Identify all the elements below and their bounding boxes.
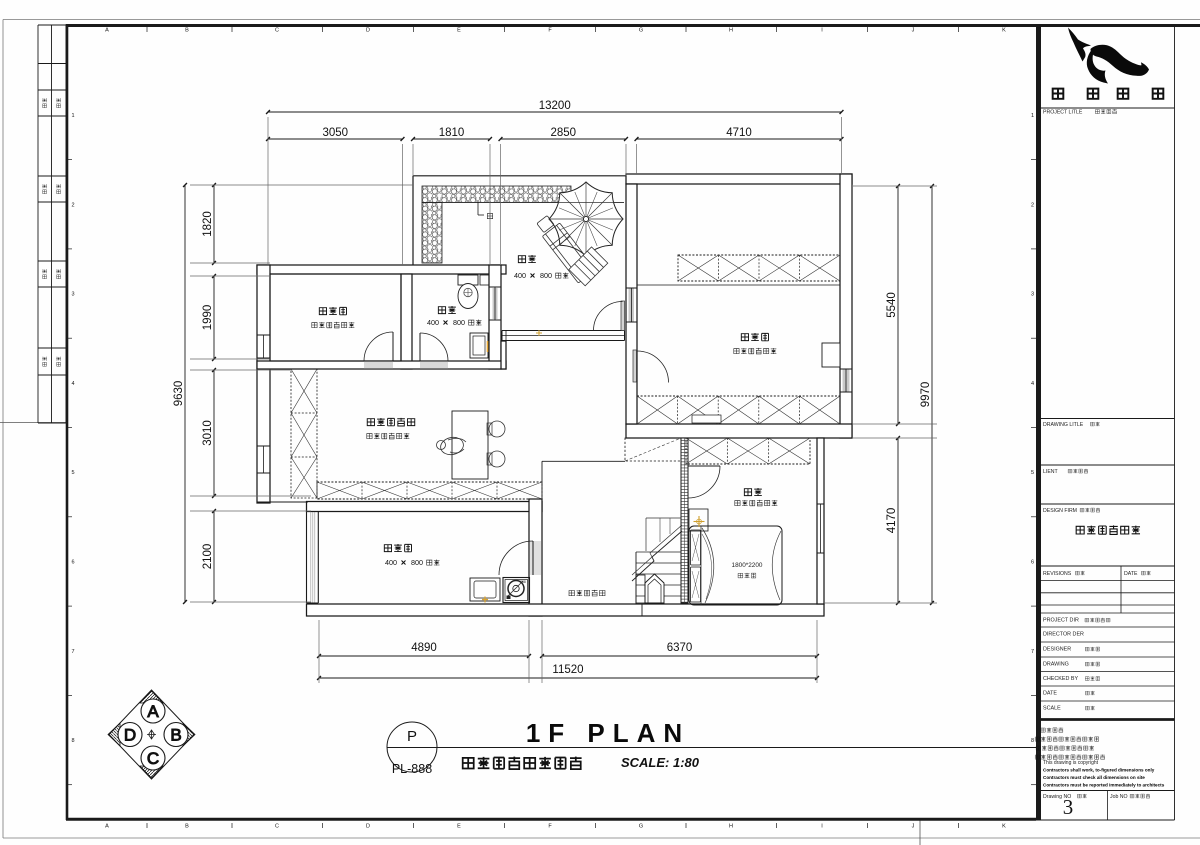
svg-text:DATE: DATE — [1043, 691, 1057, 697]
svg-text:5: 5 — [1031, 470, 1034, 476]
svg-text:3: 3 — [1063, 795, 1074, 819]
svg-text:A: A — [105, 28, 109, 34]
svg-text:3: 3 — [1031, 292, 1034, 298]
svg-text:1820: 1820 — [202, 211, 214, 237]
svg-text:6: 6 — [1031, 560, 1034, 566]
svg-text:B: B — [170, 726, 181, 745]
svg-text:2: 2 — [1031, 202, 1034, 208]
svg-text:5: 5 — [72, 470, 75, 476]
svg-text:DIRECTOR DER: DIRECTOR DER — [1043, 632, 1084, 638]
svg-text:J: J — [912, 824, 915, 830]
svg-text:4890: 4890 — [411, 642, 437, 654]
svg-text:LIENT: LIENT — [1043, 469, 1059, 475]
svg-text:1990: 1990 — [202, 305, 214, 331]
svg-text:1800*2200: 1800*2200 — [732, 562, 763, 569]
svg-text:13200: 13200 — [539, 100, 571, 112]
svg-text:CHECKED BY: CHECKED BY — [1043, 676, 1078, 682]
svg-text:3010: 3010 — [202, 420, 214, 446]
svg-text:6370: 6370 — [667, 642, 693, 654]
svg-text:1: 1 — [72, 113, 75, 119]
svg-text:C: C — [147, 749, 159, 768]
svg-text:4: 4 — [1031, 381, 1034, 387]
svg-text:This drawing is copyright: This drawing is copyright — [1043, 760, 1099, 766]
svg-text:H: H — [729, 28, 733, 34]
svg-text:4170: 4170 — [886, 508, 898, 534]
svg-text:PROJECT LITLE: PROJECT LITLE — [1043, 110, 1083, 116]
svg-text:E: E — [457, 824, 461, 830]
svg-text:2850: 2850 — [550, 127, 576, 139]
svg-text:888: 888 — [520, 580, 526, 584]
svg-text:1810: 1810 — [439, 127, 465, 139]
svg-text:800: 800 — [411, 558, 423, 567]
svg-text:C: C — [275, 28, 279, 34]
svg-text:800: 800 — [540, 271, 552, 280]
svg-text:2100: 2100 — [202, 544, 214, 570]
svg-text:DRAWING LITLE: DRAWING LITLE — [1043, 422, 1084, 428]
svg-text:3050: 3050 — [322, 127, 348, 139]
svg-text:7: 7 — [1031, 649, 1034, 655]
svg-text:PROJECT DIR: PROJECT DIR — [1043, 618, 1079, 624]
svg-text:11520: 11520 — [552, 664, 583, 676]
svg-text:6: 6 — [72, 560, 75, 566]
svg-text:5540: 5540 — [886, 292, 898, 318]
svg-text:9630: 9630 — [173, 381, 185, 407]
svg-text:G: G — [639, 28, 643, 34]
svg-text:P: P — [407, 728, 417, 745]
svg-text:Job NO: Job NO — [1110, 794, 1128, 800]
svg-text:K: K — [1002, 824, 1006, 830]
svg-text:G: G — [639, 824, 643, 830]
svg-text:Contractors must be reported i: Contractors must be reported immediately… — [1043, 783, 1165, 788]
svg-text:SCALE: SCALE — [1043, 706, 1061, 712]
svg-text:A: A — [147, 702, 159, 721]
svg-text:4710: 4710 — [726, 127, 752, 139]
svg-text:Contractors must check all dim: Contractors must check all dimensions on… — [1043, 775, 1145, 780]
svg-text:7: 7 — [72, 649, 75, 655]
svg-text:D: D — [366, 824, 370, 830]
svg-text:B: B — [185, 824, 189, 830]
svg-text:A: A — [105, 824, 109, 830]
svg-text:H: H — [729, 824, 733, 830]
svg-text:1F PLAN: 1F PLAN — [526, 718, 690, 748]
svg-text:E: E — [457, 28, 461, 34]
svg-text:400: 400 — [385, 558, 397, 567]
svg-text:1: 1 — [1031, 113, 1034, 119]
svg-text:PL-888: PL-888 — [392, 762, 432, 776]
svg-text:C: C — [275, 824, 279, 830]
svg-text:8: 8 — [1031, 738, 1034, 744]
svg-text:400: 400 — [514, 271, 526, 280]
svg-text:400: 400 — [427, 318, 439, 327]
svg-text:REVISIONS: REVISIONS — [1043, 571, 1072, 577]
svg-text:D: D — [366, 28, 370, 34]
svg-text:2: 2 — [72, 202, 75, 208]
svg-text:J: J — [912, 28, 915, 34]
svg-text:SCALE: 1:80: SCALE: 1:80 — [621, 755, 700, 770]
svg-text:D: D — [124, 726, 136, 745]
svg-text:K: K — [1002, 28, 1006, 34]
svg-text:9970: 9970 — [920, 382, 932, 408]
svg-text:3: 3 — [72, 292, 75, 298]
svg-text:DRAWING: DRAWING — [1043, 662, 1069, 668]
svg-text:800: 800 — [453, 318, 465, 327]
svg-text:DESIGNER: DESIGNER — [1043, 647, 1071, 653]
svg-text:4: 4 — [72, 381, 75, 387]
svg-text:B: B — [185, 28, 189, 34]
svg-text:8: 8 — [72, 738, 75, 744]
svg-text:Contractors shall work, to-fig: Contractors shall work, to-figured dimen… — [1043, 768, 1155, 773]
svg-text:DATE: DATE — [1124, 571, 1138, 577]
svg-text:DESIGN FIRM: DESIGN FIRM — [1043, 508, 1077, 514]
